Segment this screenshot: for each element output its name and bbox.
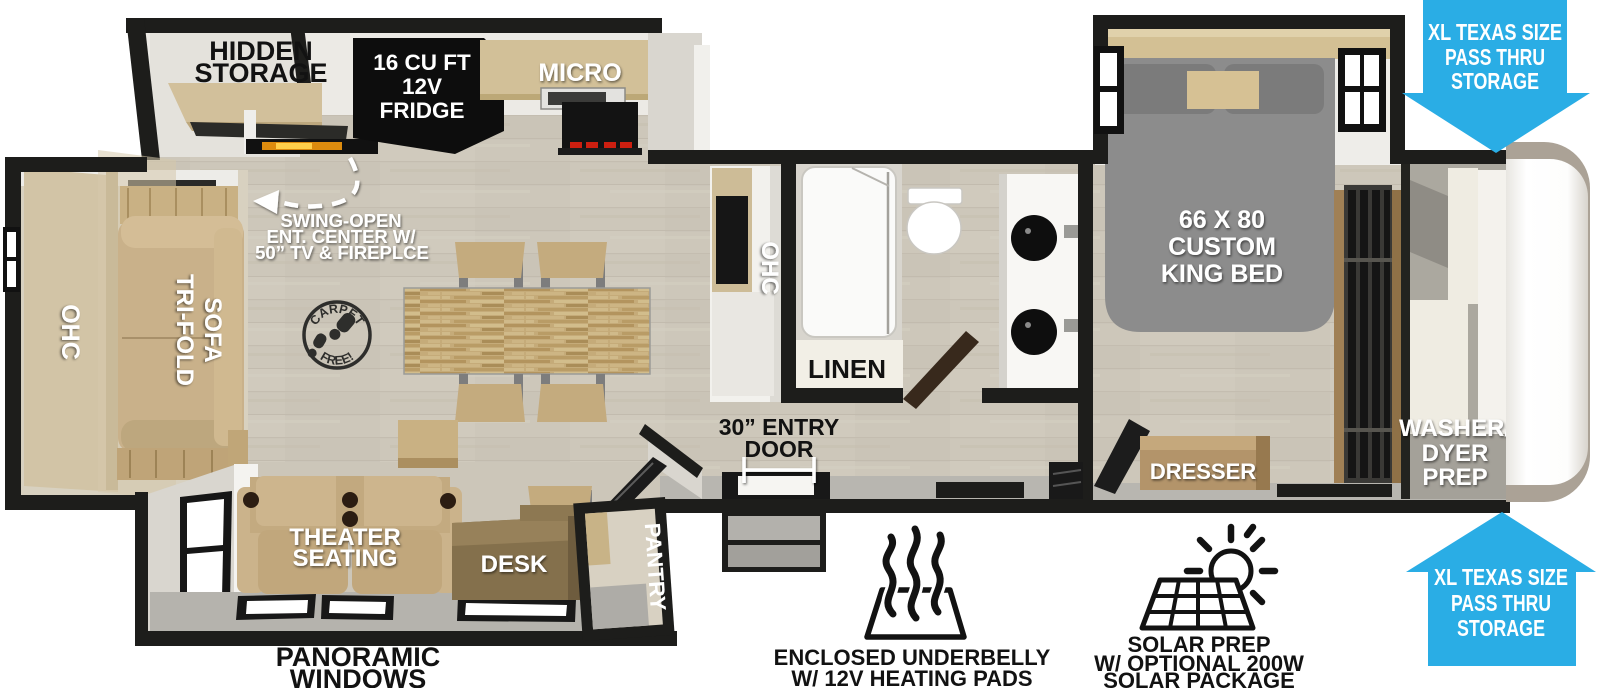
- svg-text:XL TEXAS SIZE: XL TEXAS SIZE: [1434, 564, 1568, 590]
- svg-text:STORAGE: STORAGE: [1457, 615, 1545, 641]
- svg-text:OHC: OHC: [756, 241, 783, 294]
- svg-text:MICRO: MICRO: [538, 59, 621, 87]
- svg-text:PREP: PREP: [1422, 464, 1487, 491]
- svg-text:PASS THRU: PASS THRU: [1445, 44, 1545, 70]
- svg-text:FRIDGE: FRIDGE: [379, 98, 464, 123]
- svg-text:WASHER/: WASHER/: [1399, 415, 1511, 442]
- svg-text:CUSTOM: CUSTOM: [1168, 233, 1276, 261]
- svg-text:STORAGE: STORAGE: [1451, 68, 1539, 94]
- svg-text:SOLAR PACKAGE: SOLAR PACKAGE: [1103, 668, 1295, 688]
- svg-text:TRI-FOLD: TRI-FOLD: [171, 274, 198, 386]
- svg-text:STORAGE: STORAGE: [194, 58, 327, 88]
- svg-text:XL TEXAS SIZE: XL TEXAS SIZE: [1428, 19, 1562, 45]
- svg-text:SEATING: SEATING: [293, 545, 398, 572]
- svg-text:DYER: DYER: [1422, 440, 1489, 467]
- svg-text:W/ 12V HEATING PADS: W/ 12V HEATING PADS: [791, 666, 1032, 688]
- svg-text:LINEN: LINEN: [808, 354, 886, 384]
- svg-text:OHC: OHC: [56, 304, 84, 360]
- svg-text:DESK: DESK: [481, 551, 548, 578]
- svg-text:KING BED: KING BED: [1161, 260, 1283, 288]
- svg-text:SOFA: SOFA: [199, 297, 226, 362]
- svg-text:DRESSER: DRESSER: [1150, 459, 1256, 484]
- svg-text:DOOR: DOOR: [745, 436, 814, 462]
- svg-text:50” TV & FIREPLCE: 50” TV & FIREPLCE: [255, 242, 429, 263]
- svg-text:16 CU FT: 16 CU FT: [373, 50, 471, 75]
- svg-text:WINDOWS: WINDOWS: [290, 664, 426, 688]
- svg-text:12V: 12V: [402, 74, 442, 99]
- svg-text:66 X 80: 66 X 80: [1179, 206, 1265, 234]
- svg-text:PASS THRU: PASS THRU: [1451, 590, 1551, 616]
